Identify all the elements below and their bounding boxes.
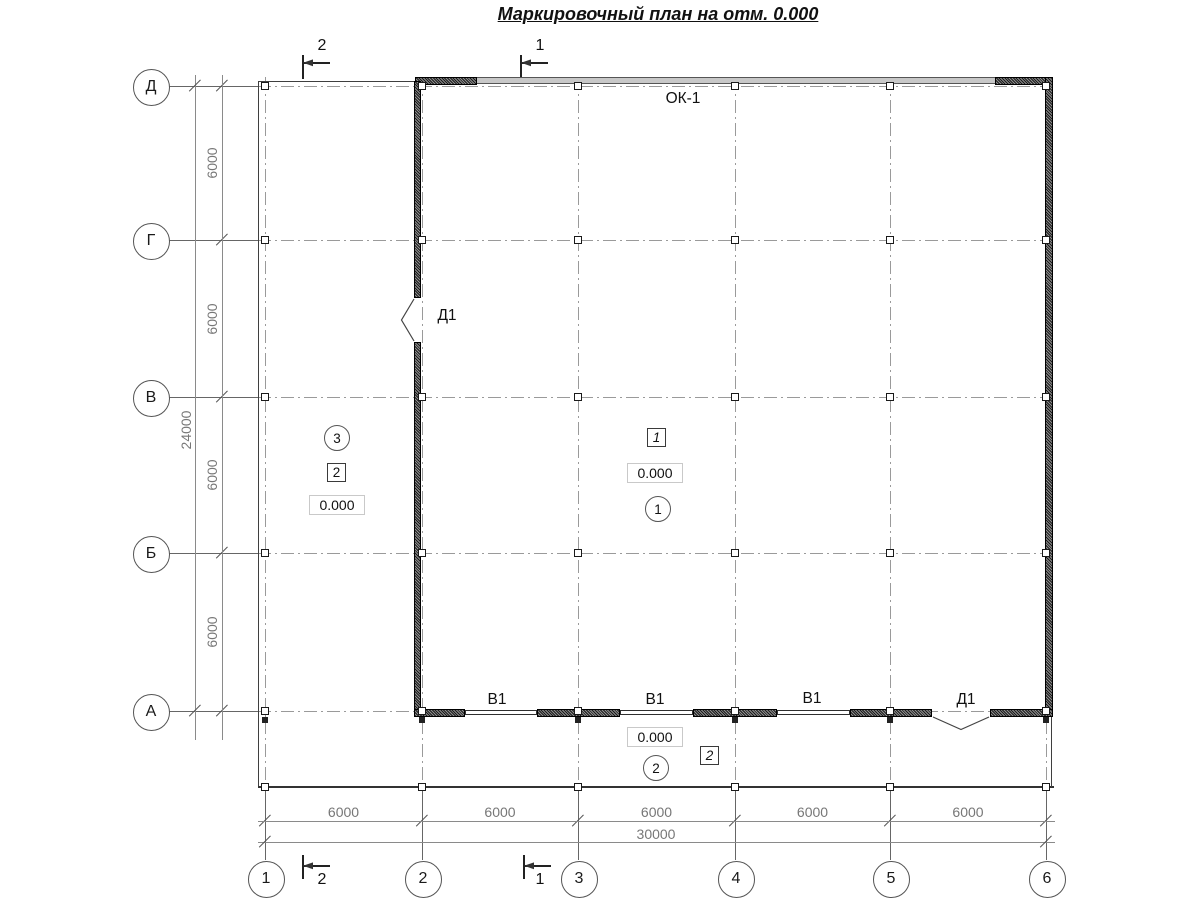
column-square bbox=[418, 393, 426, 401]
column-square bbox=[886, 236, 894, 244]
gate-opening bbox=[777, 710, 850, 715]
column-square bbox=[731, 707, 739, 715]
dim-span-label: 6000 bbox=[773, 803, 853, 821]
column-square bbox=[1042, 707, 1050, 715]
axis-leader-line bbox=[167, 711, 258, 712]
dim-span-label: 6000 bbox=[203, 279, 221, 359]
column-square bbox=[1042, 783, 1050, 791]
column-square bbox=[731, 393, 739, 401]
grid-line-vertical bbox=[735, 77, 736, 787]
dim-span-label: 6000 bbox=[203, 435, 221, 515]
building-top-edge bbox=[258, 81, 416, 82]
column-square bbox=[574, 549, 582, 557]
column-square bbox=[261, 393, 269, 401]
column-square bbox=[886, 393, 894, 401]
column-square bbox=[731, 549, 739, 557]
section-arrow-icon bbox=[303, 862, 313, 869]
column-square bbox=[418, 82, 426, 90]
column-square bbox=[418, 783, 426, 791]
column-square bbox=[887, 717, 893, 723]
wall-segment bbox=[414, 81, 421, 298]
column-square bbox=[261, 549, 269, 557]
axis-bubble-number: 6 bbox=[1029, 861, 1066, 898]
axis-leader-line bbox=[167, 553, 258, 554]
grid-line-horizontal bbox=[258, 86, 1053, 87]
gate-opening bbox=[620, 710, 693, 715]
column-square bbox=[732, 717, 738, 723]
column-square bbox=[419, 717, 425, 723]
axis-bubble-letter: В bbox=[133, 380, 170, 417]
section-arrow-icon bbox=[303, 59, 313, 66]
axis-leader-line bbox=[265, 788, 266, 860]
axis-bubble-number: 3 bbox=[561, 861, 598, 898]
grid-line-horizontal bbox=[258, 553, 1053, 554]
dim-line-spans-left bbox=[222, 75, 223, 740]
door-swing-icon bbox=[933, 717, 989, 730]
column-square bbox=[261, 707, 269, 715]
dim-span-label: 6000 bbox=[203, 123, 221, 203]
grid-line-horizontal bbox=[258, 397, 1053, 398]
column-square bbox=[1042, 82, 1050, 90]
dim-span-label: 6000 bbox=[928, 803, 1008, 821]
axis-bubble-number: 1 bbox=[248, 861, 285, 898]
column-square bbox=[1043, 717, 1049, 723]
dim-span-label: 6000 bbox=[617, 803, 697, 821]
grid-line-vertical bbox=[265, 77, 266, 787]
column-square bbox=[261, 236, 269, 244]
column-square bbox=[574, 236, 582, 244]
column-square bbox=[418, 236, 426, 244]
dim-total-label: 30000 bbox=[611, 825, 701, 843]
column-square bbox=[1042, 549, 1050, 557]
grid-line-vertical bbox=[890, 77, 891, 787]
column-square bbox=[886, 82, 894, 90]
column-square bbox=[418, 707, 426, 715]
column-square bbox=[418, 549, 426, 557]
axis-leader-line bbox=[735, 788, 736, 860]
building-right-edge bbox=[1051, 717, 1052, 787]
gate-opening bbox=[465, 710, 537, 715]
section-arrow-icon bbox=[521, 59, 531, 66]
column-square bbox=[574, 783, 582, 791]
column-square bbox=[886, 707, 894, 715]
axis-leader-line bbox=[578, 788, 579, 860]
column-square bbox=[1042, 393, 1050, 401]
column-square bbox=[574, 393, 582, 401]
door-swing-icon bbox=[402, 299, 415, 341]
axis-bubble-letter: Б bbox=[133, 536, 170, 573]
column-square bbox=[261, 82, 269, 90]
axis-leader-line bbox=[422, 788, 423, 860]
grid-line-vertical bbox=[578, 77, 579, 787]
axis-bubble-number: 2 bbox=[405, 861, 442, 898]
building-bottom-edge bbox=[258, 786, 1054, 788]
grid-line-horizontal bbox=[258, 240, 1053, 241]
axis-leader-line bbox=[890, 788, 891, 860]
column-square bbox=[886, 783, 894, 791]
column-square bbox=[731, 82, 739, 90]
column-square bbox=[1042, 236, 1050, 244]
column-square bbox=[731, 783, 739, 791]
column-square bbox=[574, 707, 582, 715]
dim-span-label: 6000 bbox=[203, 592, 221, 672]
dim-total-label: 24000 bbox=[177, 385, 195, 475]
column-square bbox=[262, 717, 268, 723]
axis-leader-line bbox=[1046, 788, 1047, 860]
building-left-edge bbox=[258, 81, 259, 787]
dim-span-label: 6000 bbox=[460, 803, 540, 821]
axis-bubble-number: 5 bbox=[873, 861, 910, 898]
floor-plan-canvas: Маркировочный план на отм. 0.000 2 1 2 1… bbox=[0, 0, 1200, 900]
dim-span-label: 6000 bbox=[304, 803, 384, 821]
column-square bbox=[575, 717, 581, 723]
grid-line-vertical bbox=[422, 77, 423, 787]
axis-leader-line bbox=[167, 240, 258, 241]
section-arrow-icon bbox=[524, 862, 534, 869]
column-square bbox=[731, 236, 739, 244]
axis-bubble-letter: Д bbox=[133, 69, 170, 106]
axis-bubble-letter: А bbox=[133, 694, 170, 731]
axis-leader-line bbox=[167, 86, 258, 87]
axis-bubble-letter: Г bbox=[133, 223, 170, 260]
axis-bubble-number: 4 bbox=[718, 861, 755, 898]
column-square bbox=[261, 783, 269, 791]
column-square bbox=[574, 82, 582, 90]
column-square bbox=[886, 549, 894, 557]
